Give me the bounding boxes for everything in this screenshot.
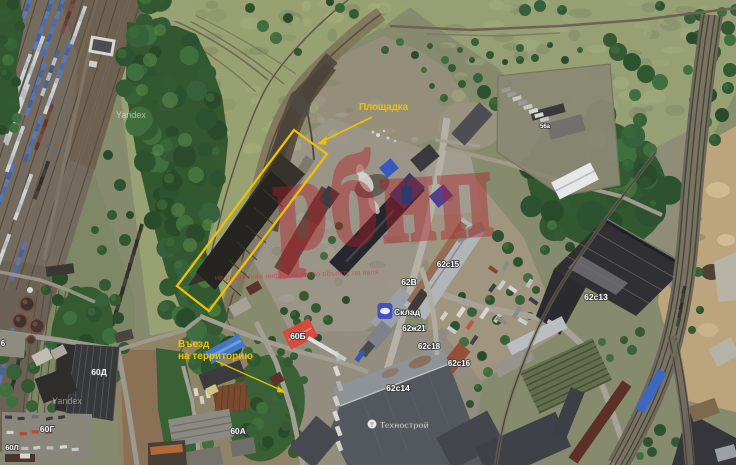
svg-text:Yandex: Yandex [52,396,82,406]
svg-text:Т: Т [370,422,374,429]
svg-text:рбнп: рбнп [269,118,500,277]
svg-text:Склад: Склад [394,307,421,317]
svg-text:62ж21: 62ж21 [402,324,426,333]
svg-text:56а: 56а [540,124,551,130]
svg-text:62с18: 62с18 [418,342,441,351]
svg-text:на территорию: на территорию [178,351,253,362]
svg-text:62с16: 62с16 [448,359,471,368]
svg-text:62с14: 62с14 [386,383,410,393]
svg-text:60Л: 60Л [5,443,19,452]
svg-text:Въезд: Въезд [178,339,210,350]
svg-text:60Д: 60Д [91,367,107,377]
svg-text:Yandex: Yandex [116,110,146,120]
svg-text:60Г: 60Г [40,424,54,434]
svg-text:60Б: 60Б [290,331,306,341]
svg-text:Площадка: Площадка [359,102,409,113]
svg-text:62В: 62В [401,277,417,287]
svg-text:62с15: 62с15 [437,260,460,269]
svg-text:6: 6 [1,339,6,348]
svg-text:60А: 60А [230,426,246,436]
svg-text:Технострой: Технострой [380,420,429,430]
svg-text:62с13: 62с13 [584,292,608,302]
